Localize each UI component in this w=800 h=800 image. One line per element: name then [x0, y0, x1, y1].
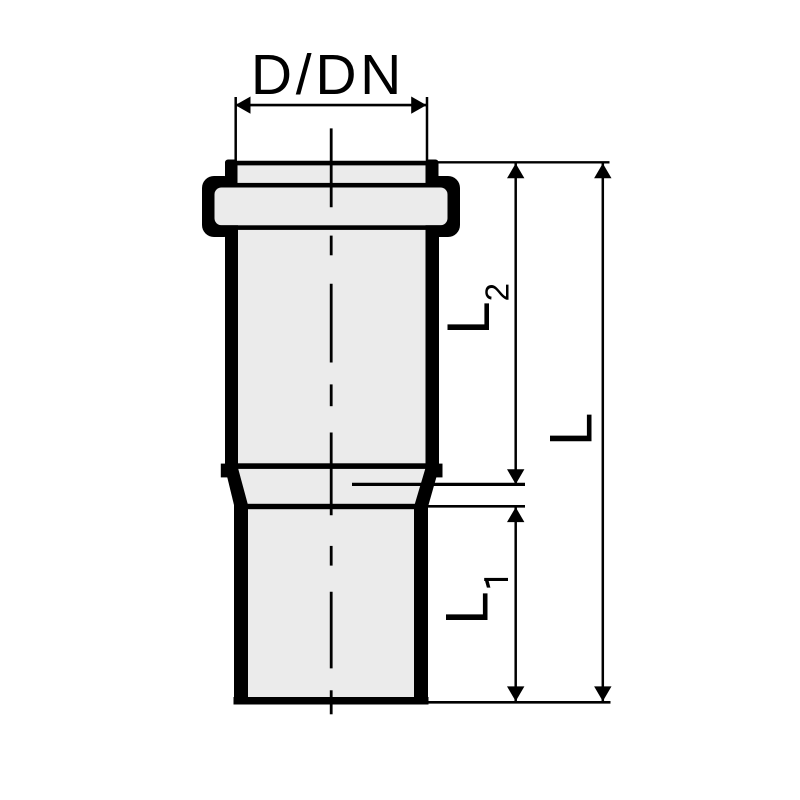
svg-text:D/DN: D/DN [251, 43, 405, 107]
svg-text:L: L [536, 413, 604, 447]
svg-text:L: L [433, 591, 501, 625]
